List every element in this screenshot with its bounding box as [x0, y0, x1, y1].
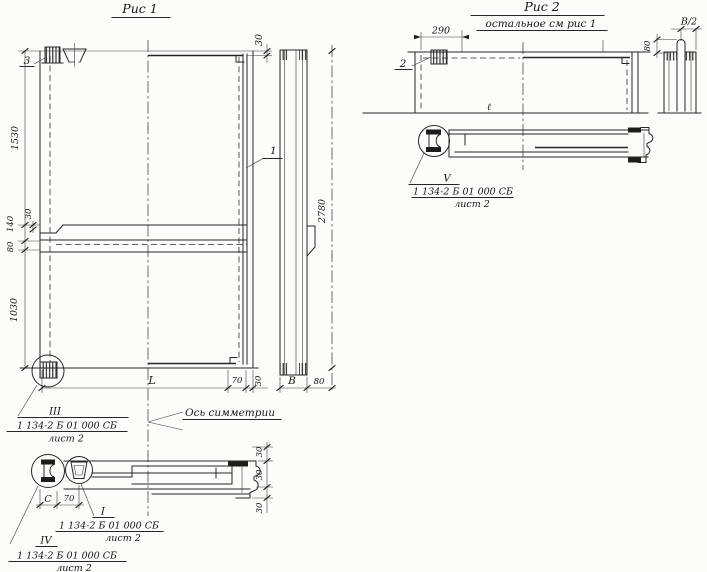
fig1-embed-item-3 [42, 47, 63, 63]
fig1-detail-i-mark: I [100, 507, 106, 518]
drawing-sheet: Рис 1 3 [0, 0, 707, 572]
fig2-detail-v-doc: 1 134-2 Б 01 000 СБ [413, 187, 513, 198]
fig1-detail-iii-note: III 1 134-2 Б 01 000 СБ лист 2 [7, 407, 128, 445]
fig1-detail-iii-doc: 1 134-2 Б 01 000 СБ [17, 421, 117, 432]
fig1-lifting-recess [63, 43, 86, 67]
fig1-axis-label: Ось симметрии [185, 407, 275, 419]
fig2-dim-290: 290 [414, 26, 469, 53]
fig1-dim-top-30-label: 30 [254, 34, 265, 46]
fig1-groove [40, 225, 247, 252]
fig1-dim-bottom: L 70 30 [39, 370, 268, 393]
fig1-detail-iii-sheet: лист 2 [48, 434, 84, 445]
fig1-dim-overall-height: 2780 [317, 45, 335, 390]
fig1-detail-iii-mark: III [48, 407, 62, 418]
fig1-section-dims-right: 30 30 30 [252, 442, 273, 513]
fig1-detail-iv-doc: 1 134-2 Б 01 000 СБ [17, 551, 117, 562]
figure-1: Рис 1 3 [6, 1, 336, 572]
fig1-detail-i-note: I 1 134-2 Б 01 000 СБ лист 2 [56, 484, 163, 544]
figure-2: Рис 2 остальное см рис 1 2 [363, 0, 702, 210]
fig1-dim-80-edge: 80 [314, 377, 325, 387]
fig2-end-section [658, 40, 701, 114]
fig1-dim-top-30: 30 [247, 34, 272, 63]
fig1-item3-callout: 3 [20, 55, 45, 67]
fig2-detail-v-mark: V [443, 174, 452, 185]
fig1-title: Рис 1 [121, 1, 157, 16]
technical-drawing: Рис 1 3 [0, 0, 707, 572]
fig2-dim-B2: В/2 [671, 17, 702, 51]
fig2-dim-290-label: 290 [431, 26, 450, 37]
fig1-dim-sec70: 70 [64, 494, 75, 504]
fig2-item2-callout: 2 [395, 57, 431, 70]
fig1-detail-iv-sheet: лист 2 [56, 563, 92, 572]
fig1-dim-30-bottom: 30 [254, 375, 264, 386]
fig1-side-view [280, 50, 315, 375]
fig1-dim-secC: С [44, 494, 52, 505]
fig2-item2-label: 2 [399, 58, 407, 70]
fig2-subtitle: остальное см рис 1 [486, 18, 597, 30]
fig1-axis-callout: Ось симметрии [148, 407, 281, 430]
fig1-dim-30-groove: 30 [24, 208, 34, 219]
fig2-embed-item-2 [431, 50, 447, 64]
fig1-dim-B: В [287, 375, 296, 387]
fig1-dim-side-bottom: В 80 [277, 375, 336, 393]
fig1-panel-outline [18, 51, 272, 368]
fig2-title: Рис 2 [523, 0, 559, 14]
fig2-detail-v-sheet: лист 2 [454, 199, 490, 210]
fig1-dim-sec30-mid: 30 [255, 469, 265, 480]
fig1-detail-i-sheet: лист 2 [105, 533, 141, 544]
fig1-dim-2780: 2780 [317, 199, 328, 224]
fig1-detail-i-doc: 1 134-2 Б 01 000 СБ [59, 521, 159, 532]
fig1-dim-80: 80 [6, 241, 16, 252]
fig2-length-mark: ℓ [487, 102, 491, 113]
fig1-detail-iv-mark: IV [39, 536, 53, 547]
fig1-dim-140: 140 [6, 215, 16, 232]
fig1-dim-sec30-top: 30 [255, 446, 265, 457]
fig2-section-view [419, 126, 653, 163]
fig1-item1-label: 1 [270, 145, 277, 157]
fig1-dim-sec30-bot: 30 [255, 502, 265, 513]
fig2-dim-B2-label: В/2 [680, 17, 697, 28]
fig1-dim-70: 70 [232, 376, 243, 386]
fig1-dim-length: L [147, 374, 155, 387]
fig1-dim-1530: 1530 [10, 126, 21, 150]
fig2-dim-80-label: 80 [643, 40, 653, 51]
fig1-dim-left-chain: 1530 140 30 80 1030 [6, 48, 40, 371]
fig1-dim-1030: 1030 [9, 298, 20, 322]
fig1-item1-callout: 1 [246, 145, 282, 168]
fig1-section-view [32, 455, 261, 499]
fig2-detail-v-note: V 1 134-2 Б 01 000 СБ лист 2 [409, 153, 513, 210]
